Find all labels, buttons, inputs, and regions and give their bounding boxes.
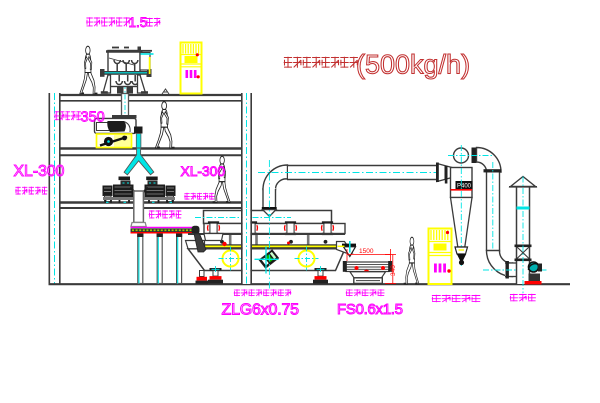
svg-text:350: 350 bbox=[81, 110, 105, 126]
svg-text:340: 340 bbox=[390, 265, 397, 276]
svg-text:FS0.6x1.5: FS0.6x1.5 bbox=[337, 301, 403, 318]
svg-text:1500: 1500 bbox=[359, 248, 374, 255]
svg-text:(500kg/h): (500kg/h) bbox=[356, 50, 470, 80]
svg-text:ZLG6x0.75: ZLG6x0.75 bbox=[222, 302, 300, 319]
svg-text:1.5: 1.5 bbox=[129, 15, 148, 30]
svg-text:P400: P400 bbox=[457, 184, 472, 190]
svg-text:XL-300: XL-300 bbox=[14, 163, 65, 180]
svg-text:XL-300: XL-300 bbox=[181, 164, 226, 179]
